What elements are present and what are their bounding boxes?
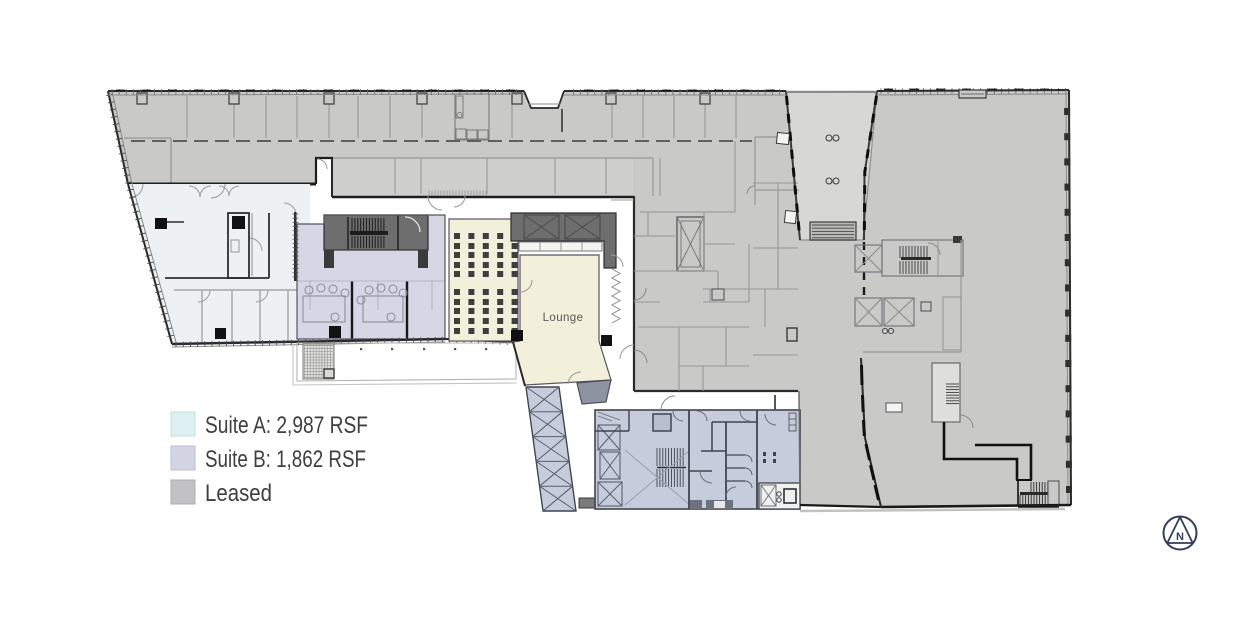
svg-text:Leased: Leased (205, 480, 272, 507)
svg-text:Suite A: 2,987 RSF: Suite A: 2,987 RSF (205, 412, 368, 439)
svg-text:Suite B: 1,862 RSF: Suite B: 1,862 RSF (205, 446, 366, 473)
svg-text:Lounge: Lounge (543, 312, 584, 324)
svg-text:N: N (1176, 531, 1184, 543)
